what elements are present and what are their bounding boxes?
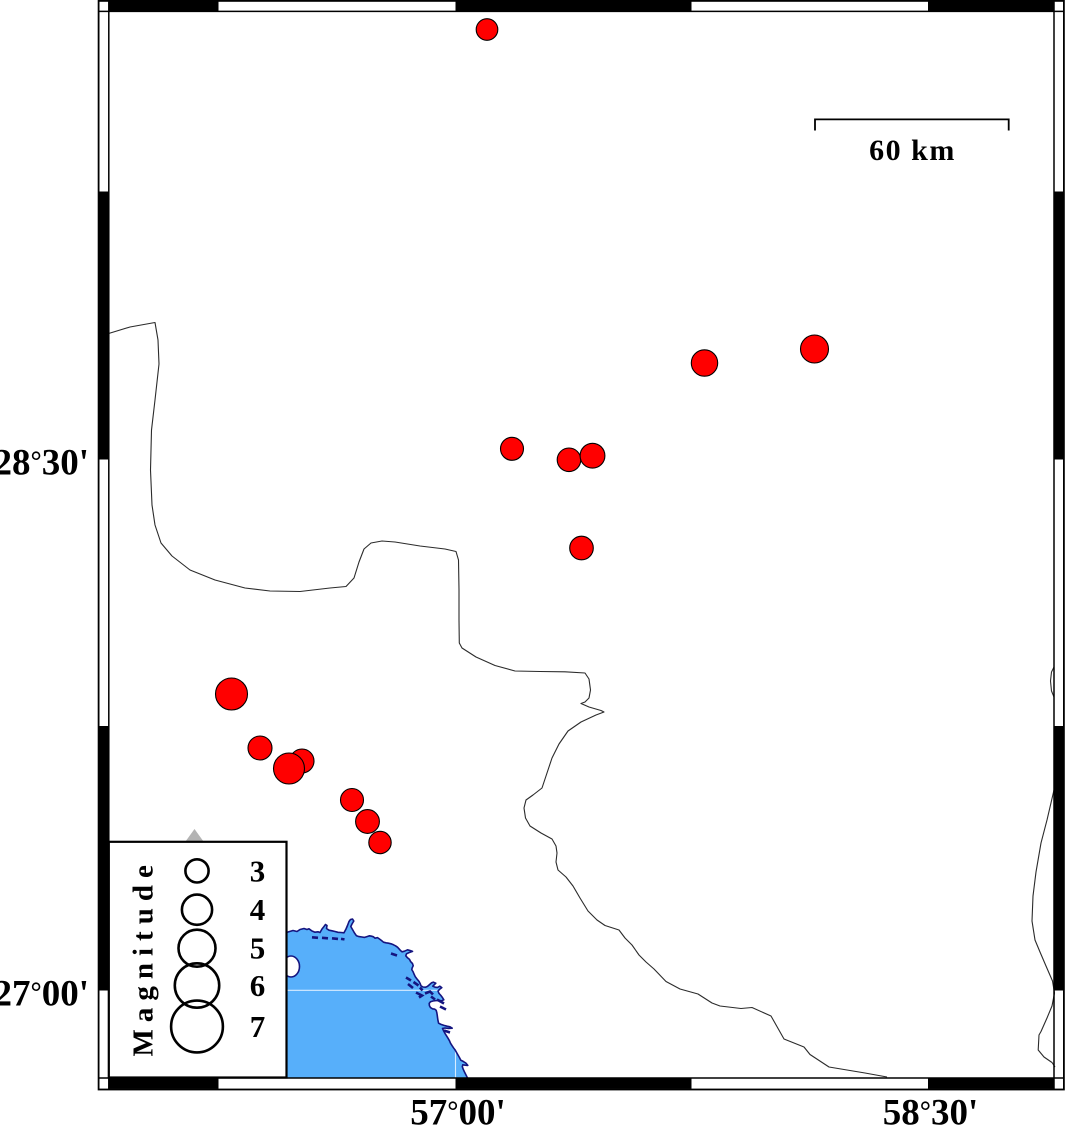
svg-text:58°30': 58°30' [883, 1093, 978, 1127]
svg-text:28°30': 28°30' [0, 442, 89, 483]
svg-text:60 km: 60 km [869, 134, 956, 167]
svg-text:27°00': 27°00' [0, 973, 89, 1014]
svg-text:4: 4 [250, 892, 266, 927]
svg-text:3: 3 [250, 853, 266, 888]
svg-text:57°00': 57°00' [410, 1093, 505, 1127]
svg-text:7: 7 [250, 1009, 266, 1044]
svg-text:Magnitude: Magnitude [128, 858, 160, 1056]
svg-text:5: 5 [250, 931, 266, 966]
svg-text:6: 6 [250, 968, 266, 1003]
